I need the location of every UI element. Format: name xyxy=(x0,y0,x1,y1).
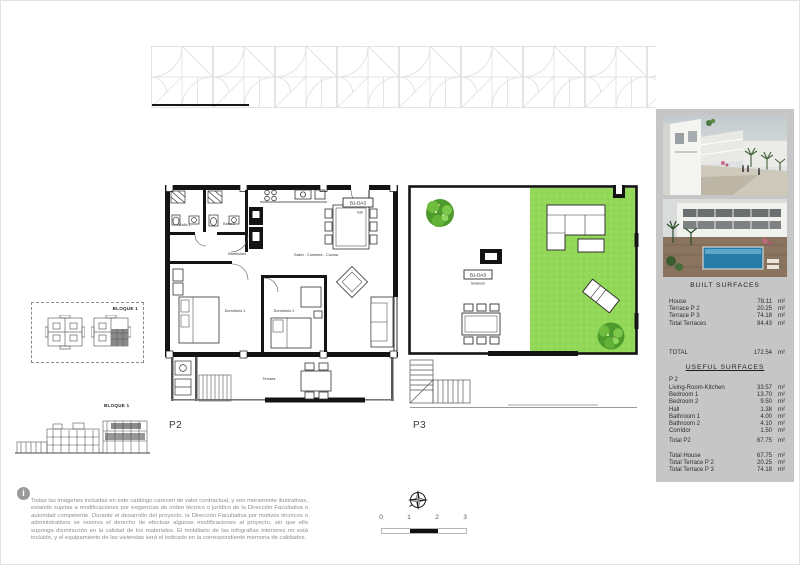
row-value: 74.18 xyxy=(746,313,772,320)
row-unit: m² xyxy=(772,399,785,406)
unit-sub: Solarium xyxy=(471,282,485,286)
row-unit: m² xyxy=(772,428,785,435)
row-unit: m² xyxy=(772,467,785,474)
row-unit: m² xyxy=(772,438,785,445)
render-exterior-1 xyxy=(663,115,787,195)
staircase xyxy=(199,375,231,401)
bathroom2-fixtures xyxy=(208,191,239,226)
scale-tick: 3 xyxy=(460,514,470,521)
row-label: Bedroom 2 xyxy=(669,399,746,406)
built-total-row: TOTAL 172.54 m² xyxy=(669,350,785,357)
room-label-dorm2: Dormitorio 2 xyxy=(274,309,295,313)
catalog-page: B1-DA3 hall Baño 1 Baño 2 Distribuidor S… xyxy=(0,0,800,565)
terrace xyxy=(171,357,394,403)
table-row: Total Terraces 94.43 m² xyxy=(669,321,785,328)
tree xyxy=(598,323,625,350)
row-label: Total Terrace P 2 xyxy=(669,460,746,467)
scale-ticks: 0 1 2 3 xyxy=(376,514,470,521)
table-row: TOTAL 172.54 m² xyxy=(669,350,785,357)
row-label: Total Terrace P 3 xyxy=(669,467,746,474)
row-value: 20.25 xyxy=(746,306,772,313)
row-label: House xyxy=(669,299,746,306)
highlighted-unit xyxy=(111,329,128,346)
totals-table: Total House 67.75 m² Total Terrace P 2 2… xyxy=(669,453,785,475)
row-value: 172.54 xyxy=(746,350,772,357)
site-key-box: BLOQUE 1 xyxy=(31,302,144,363)
plan-p2-label: P2 xyxy=(169,420,182,431)
row-unit: m² xyxy=(772,460,785,467)
table-row: House 78.11 m² xyxy=(669,299,785,306)
useful-surfaces-title: USEFUL SURFACES xyxy=(656,364,794,371)
row-label: TOTAL xyxy=(669,350,746,357)
scale-tick: 2 xyxy=(432,514,442,521)
bed-2 xyxy=(271,287,322,348)
floorplan-p3: B1-DA3 Solarium xyxy=(408,185,641,437)
row-value: 74.18 xyxy=(746,467,772,474)
row-label: Bathroom 2 xyxy=(669,421,746,428)
disclaimer-text: Todas las imágenes incluidas en este cat… xyxy=(31,498,308,543)
surfaces-panel: BUILT SURFACES House 78.11 m² Terrace P … xyxy=(656,109,794,482)
info-icon: i xyxy=(17,487,30,500)
row-label: Living-Room-Kitchen xyxy=(669,385,746,392)
row-value: 13.70 xyxy=(746,392,772,399)
built-surfaces-title: BUILT SURFACES xyxy=(656,282,794,289)
row-unit: m² xyxy=(772,392,785,399)
built-surfaces-table: House 78.11 m² Terrace P 2 20.25 m² Terr… xyxy=(669,299,785,328)
scale-tick: 0 xyxy=(376,514,386,521)
elevation-drawing xyxy=(15,409,150,455)
row-label: Bathroom 1 xyxy=(669,414,746,421)
row-unit: m² xyxy=(772,313,785,320)
floorplan-p2: B1-DA3 hall Baño 1 Baño 2 Distribuidor S… xyxy=(165,185,398,437)
row-value: 78.11 xyxy=(746,299,772,306)
table-row: Living-Room-Kitchen 33.57 m² xyxy=(669,385,785,392)
row-unit: m² xyxy=(772,414,785,421)
compass-icon xyxy=(407,489,429,511)
unit-sub: hall xyxy=(357,211,363,215)
table-row: Total Terrace P 3 74.18 m² xyxy=(669,467,785,474)
table-row: Terrace P 2 20.25 m² xyxy=(669,306,785,313)
table-row: Corridor 1.50 m² xyxy=(669,428,785,435)
row-label: Total Terraces xyxy=(669,321,746,328)
scale-bar xyxy=(381,528,467,534)
row-label: Terrace P 3 xyxy=(669,313,746,320)
chimney xyxy=(480,249,502,264)
row-value: 67.75 xyxy=(746,453,772,460)
room-label-bano2: Baño 2 xyxy=(223,222,234,226)
row-label: Bedroom 1 xyxy=(669,392,746,399)
table-row: Hall 1.38 m² xyxy=(669,407,785,414)
bed-1 xyxy=(173,269,219,343)
row-value: 1.38 xyxy=(746,407,772,414)
row-value: 4.10 xyxy=(746,421,772,428)
table-row: Total P2 67.75 m² xyxy=(669,438,785,445)
site-key-plan-left xyxy=(45,315,85,351)
row-label: Total House xyxy=(669,453,746,460)
dining-table xyxy=(462,304,500,344)
window xyxy=(394,297,397,352)
row-unit: m² xyxy=(772,321,785,328)
plan-p3-label: P3 xyxy=(413,420,426,431)
table-row: Bathroom 1 4.00 m² xyxy=(669,414,785,421)
armchair xyxy=(336,266,367,297)
row-unit: m² xyxy=(772,350,785,357)
tree xyxy=(426,199,454,227)
floor-label: P 2 xyxy=(669,377,678,383)
room-label-salon: Salón - Comedor - Cocina xyxy=(294,253,339,257)
dining-table xyxy=(325,205,377,249)
table-row: Bathroom 2 4.10 m² xyxy=(669,421,785,428)
outdoor-table xyxy=(301,363,331,399)
unit-code: B1-DA3 xyxy=(350,201,367,206)
row-label: Total P2 xyxy=(669,438,746,445)
render-exterior-2 xyxy=(663,199,787,277)
sofa xyxy=(371,297,393,347)
row-value: 1.50 xyxy=(746,428,772,435)
row-value: 20.25 xyxy=(746,460,772,467)
room-label-terraza: Terraza xyxy=(263,377,277,381)
row-value: 4.00 xyxy=(746,414,772,421)
room-label-distribuidor: Distribuidor xyxy=(228,252,247,256)
scale-bar-fill xyxy=(410,529,438,533)
table-row: Bedroom 1 13.70 m² xyxy=(669,392,785,399)
elevation-block-label: BLOQUE 1 xyxy=(104,403,129,408)
table-row: Total Terrace P 2 20.25 m² xyxy=(669,460,785,467)
decorative-pattern xyxy=(151,46,656,108)
row-label: Hall xyxy=(669,407,746,414)
row-unit: m² xyxy=(772,306,785,313)
table-row: Bedroom 2 9.50 m² xyxy=(669,399,785,406)
row-value: 67.75 xyxy=(746,438,772,445)
row-value: 33.57 xyxy=(746,385,772,392)
table-row: Terrace P 3 74.18 m² xyxy=(669,313,785,320)
table-row: Total House 67.75 m² xyxy=(669,453,785,460)
row-unit: m² xyxy=(772,407,785,414)
bbq xyxy=(175,361,191,395)
room-label-bano1: Baño 1 xyxy=(179,223,190,227)
row-unit: m² xyxy=(772,385,785,392)
row-label: Corridor xyxy=(669,428,746,435)
bathroom1-fixtures xyxy=(171,191,199,225)
room-label-dorm1: Dormitorio 1 xyxy=(225,309,246,313)
staircase xyxy=(410,360,470,403)
unit-label: B1-DA3 Solarium xyxy=(464,270,492,286)
row-value: 9.50 xyxy=(746,399,772,406)
site-key-plan-right xyxy=(91,315,131,351)
row-value: 94.43 xyxy=(746,321,772,328)
useful-subtotal-row: Total P2 67.75 m² xyxy=(669,438,785,445)
kitchen-appliances xyxy=(249,190,327,249)
row-label: Terrace P 2 xyxy=(669,306,746,313)
divider xyxy=(152,104,249,106)
unit-code: B1-DA3 xyxy=(470,273,487,278)
scale-tick: 1 xyxy=(404,514,414,521)
site-key-block-label: BLOQUE 1 xyxy=(113,306,138,311)
useful-surfaces-table: Living-Room-Kitchen 33.57 m² Bedroom 1 1… xyxy=(669,385,785,435)
row-unit: m² xyxy=(772,299,785,306)
row-unit: m² xyxy=(772,421,785,428)
row-unit: m² xyxy=(772,453,785,460)
